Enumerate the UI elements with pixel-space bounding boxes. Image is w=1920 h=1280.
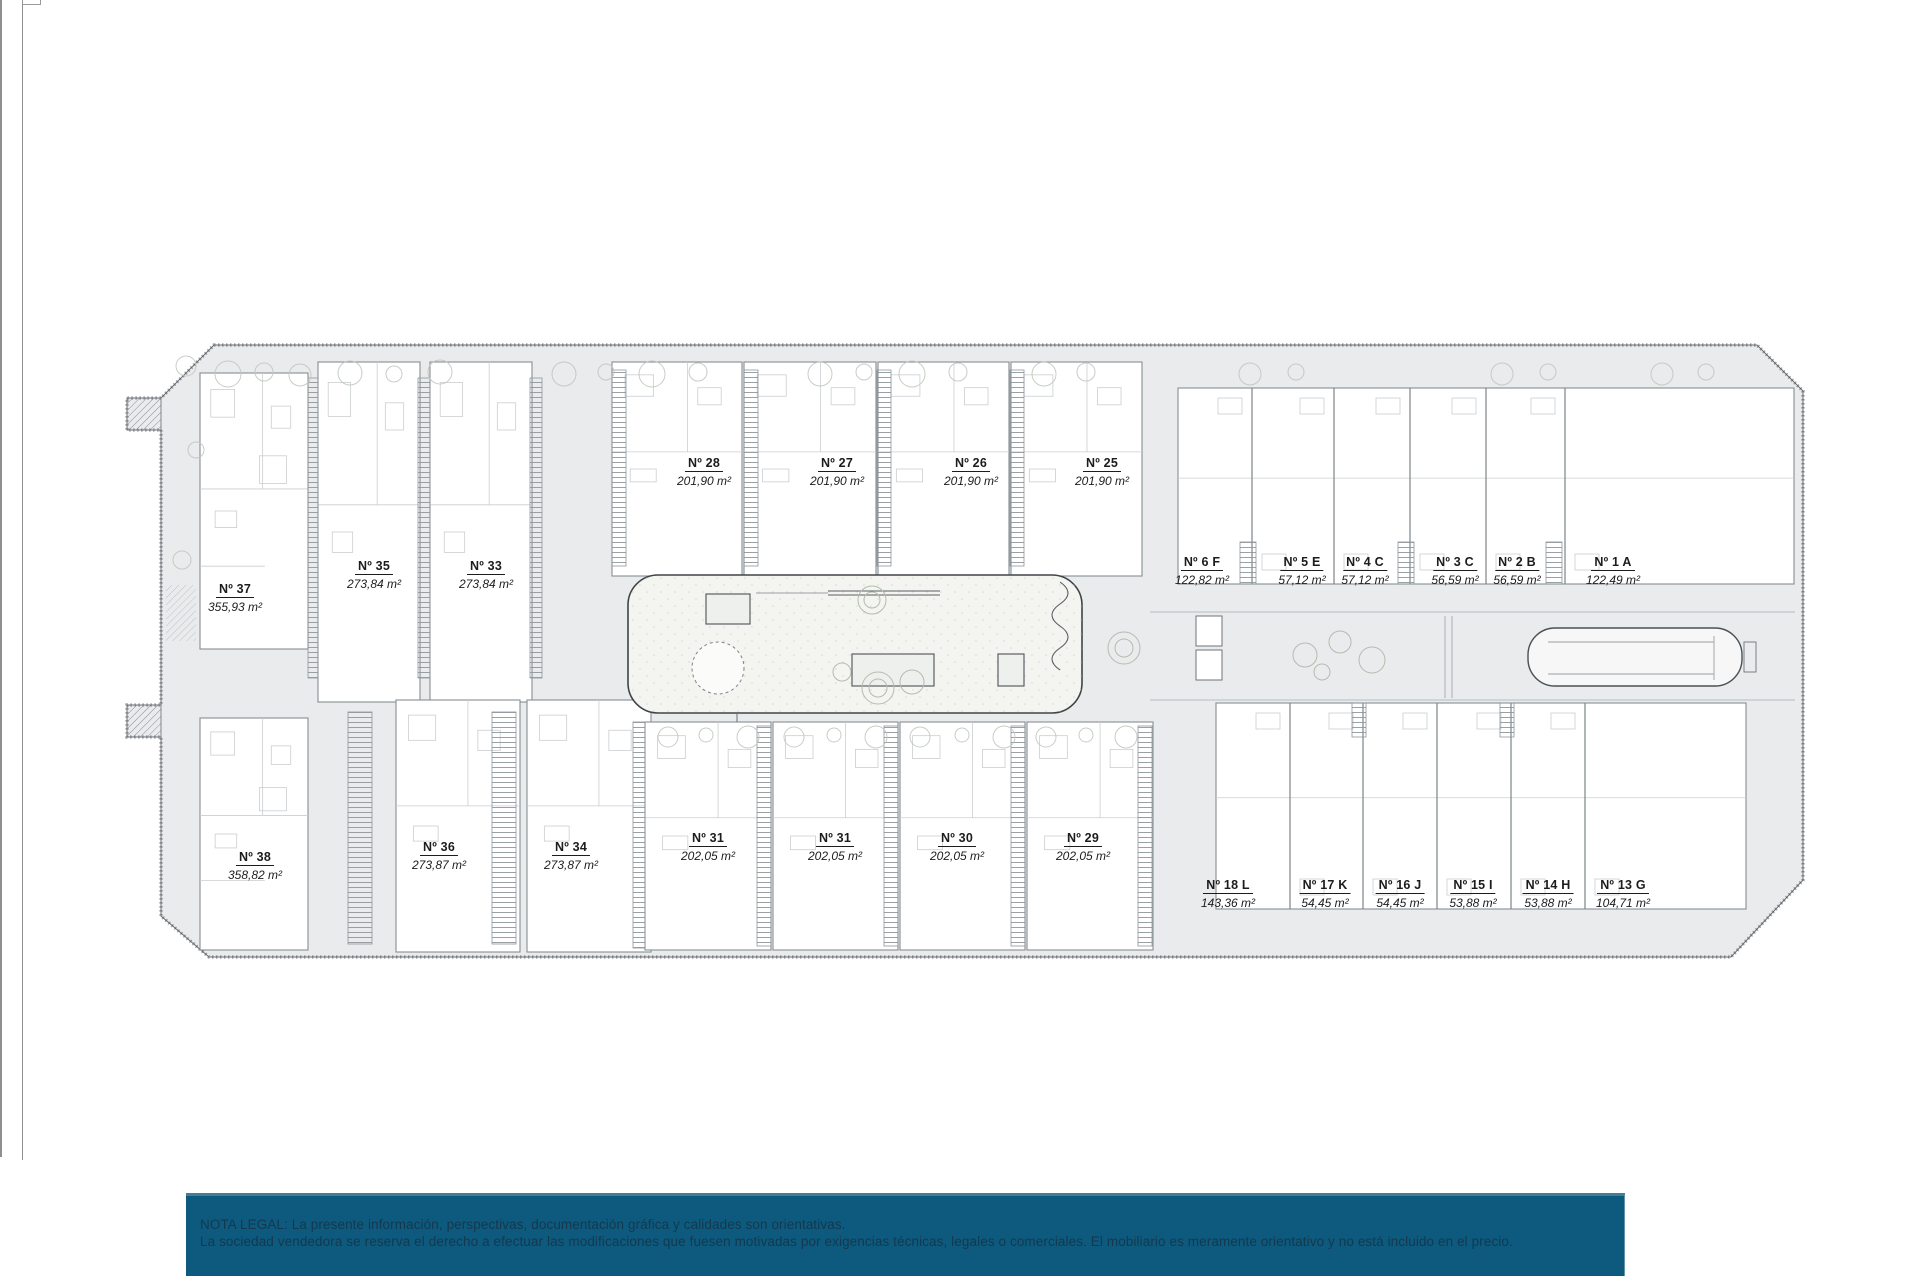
legal-notice-line2: La sociedad vendedora se reserva el dere… — [200, 1233, 1614, 1250]
planter — [706, 594, 750, 624]
site-plan-drawing — [0, 0, 1920, 1280]
utility-box — [1196, 650, 1222, 680]
lap-pool — [1528, 628, 1742, 686]
central-courtyard — [628, 575, 1082, 722]
planter — [998, 654, 1024, 686]
site-left-notch-bottom — [127, 705, 161, 737]
site-left-notch-top — [127, 398, 161, 430]
driveway-hatch — [166, 585, 196, 641]
utility-box — [1196, 616, 1222, 646]
floor-plan-page: { "colors": { "site_fill": "#e9ebec", "s… — [0, 0, 1920, 1280]
dwelling-block — [1216, 703, 1746, 909]
site-plan: Nº 37 355,93 m² Nº 35 273,84 m² Nº 33 27… — [0, 0, 1920, 1280]
legal-notice-line1: NOTA LEGAL: La presente información, per… — [200, 1216, 1614, 1233]
spa-circle — [692, 642, 744, 694]
legal-notice-bar: NOTA LEGAL: La presente información, per… — [186, 1193, 1625, 1276]
